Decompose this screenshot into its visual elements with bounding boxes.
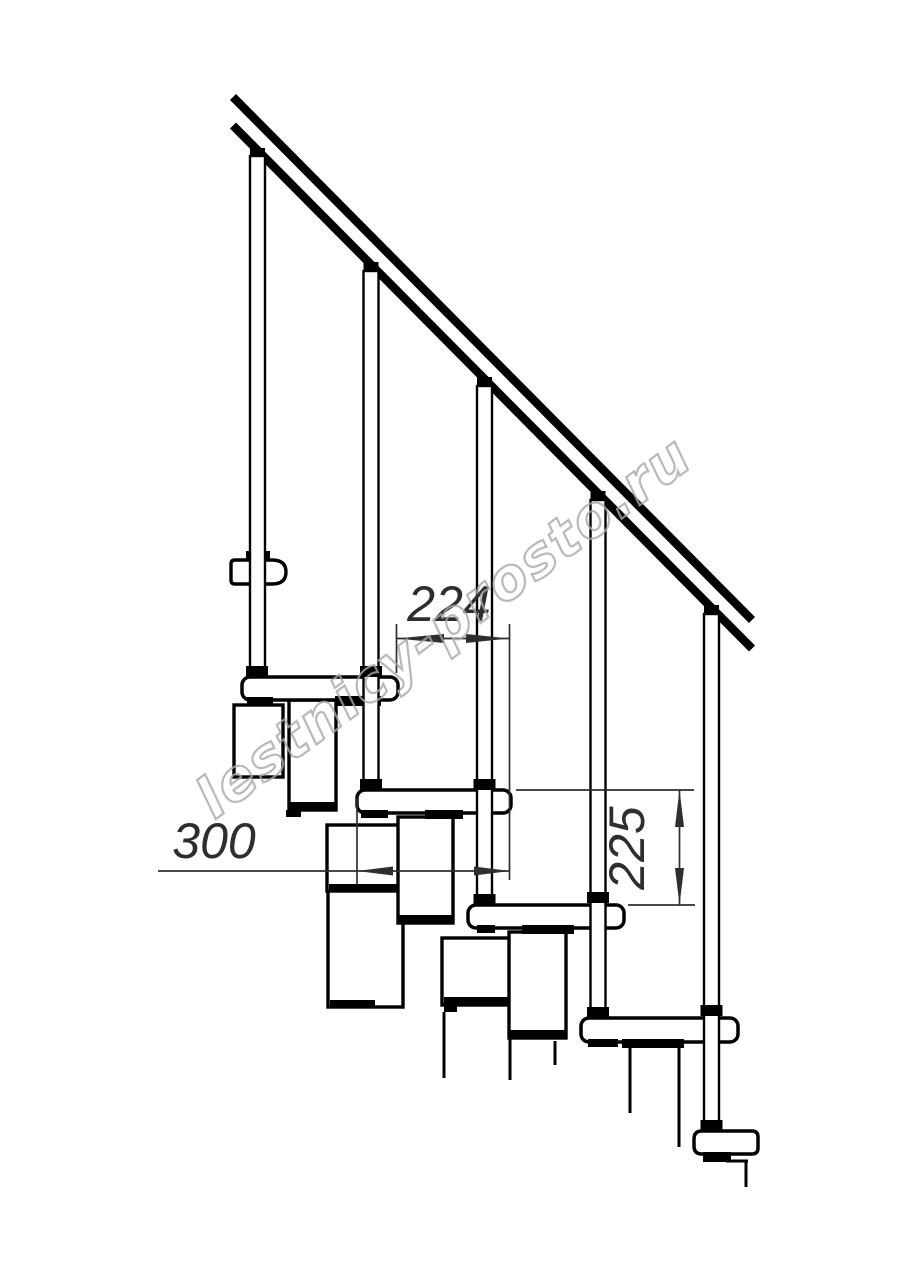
baluster-5-rail-cap (704, 605, 719, 614)
baluster-3-rail-cap (477, 377, 492, 386)
baluster-2-rail-cap (364, 262, 379, 271)
arrow-up (675, 790, 684, 827)
module-square-2 (327, 825, 403, 891)
module-column-2 (398, 817, 453, 923)
module-square-3 (442, 938, 517, 1005)
baluster-5 (701, 605, 723, 1131)
module-column-3 (509, 932, 566, 1038)
baluster-4-upper-collar (587, 892, 609, 903)
dimension-rise-225: 225 (516, 790, 695, 905)
dim-label-225: 225 (599, 806, 655, 891)
baluster-4 (587, 491, 609, 1018)
baluster-5-upper-collar (701, 1005, 723, 1016)
tread-5 (694, 1131, 758, 1154)
drawing-canvas: 224 300 225 lestnicy-prosto.ru (0, 0, 914, 1280)
baluster-1 (246, 148, 268, 677)
baluster-1-rail-cap (250, 148, 265, 157)
module-column-1-foot (286, 810, 301, 817)
module-square-3-base (444, 997, 517, 1005)
module-column-2-base (398, 915, 453, 923)
baluster-1-collar (246, 666, 268, 677)
module-lower-box-2-base (330, 1000, 375, 1008)
support-modules (286, 700, 748, 1187)
arrow-down (675, 868, 684, 905)
module-column-3-base (509, 1030, 566, 1039)
baluster-5-collar (701, 1120, 723, 1131)
baluster-2-collar (360, 779, 382, 790)
baluster-3-upper-collar (474, 779, 496, 790)
module-square-3-foot (444, 1005, 457, 1012)
baluster-4-collar (587, 1007, 609, 1018)
staircase-drawing: 224 300 225 lestnicy-prosto.ru (0, 0, 914, 1280)
module-column-1-base (289, 802, 336, 811)
baluster-3-collar (474, 894, 496, 905)
module-lower-box-2 (328, 890, 403, 1007)
module-square-2-base (329, 884, 403, 892)
